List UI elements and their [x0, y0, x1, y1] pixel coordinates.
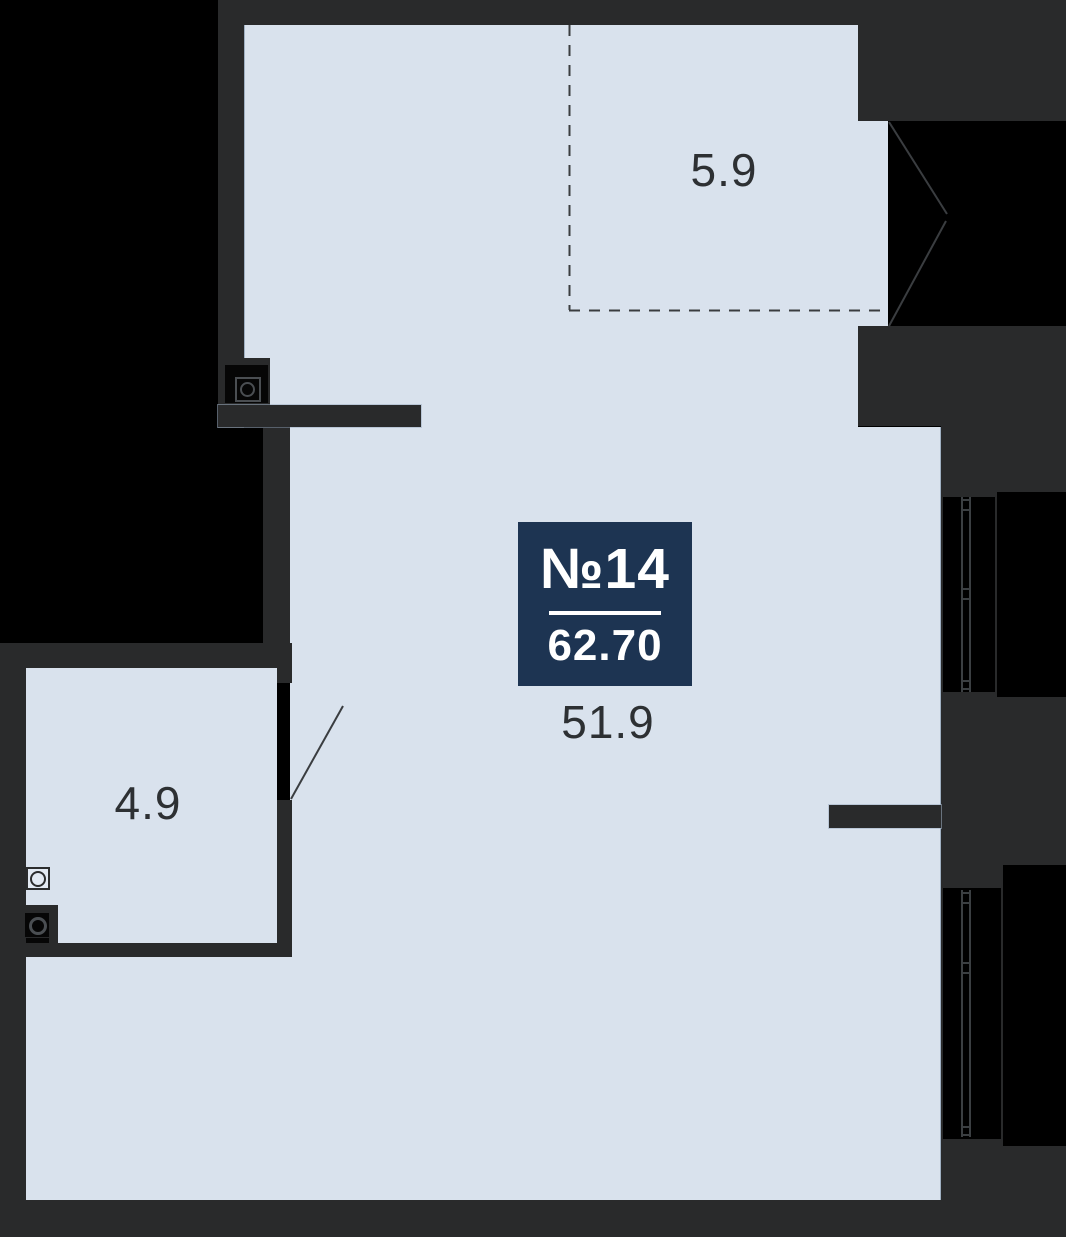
entry-door-swing: [889, 122, 947, 326]
window-1-glazing: [961, 497, 971, 692]
bathroom-door-swing: [291, 706, 343, 799]
unit-number: №14: [540, 541, 670, 598]
badge-divider: [549, 611, 661, 615]
floor-plan: №14 62.70 5.9 51.9 4.9: [0, 0, 1066, 1237]
washer-icon-dark: [25, 913, 49, 937]
unit-total-area: 62.70: [547, 624, 662, 668]
living-area-label: 51.9: [561, 695, 655, 749]
window-2-glazing: [961, 890, 971, 1137]
washer-icon-base-bar: [26, 938, 49, 943]
unit-badge: №14 62.70: [518, 522, 692, 686]
fixture-icon-light: [26, 867, 50, 890]
bathroom-area-label: 4.9: [115, 776, 182, 830]
balcony-area-label: 5.9: [691, 143, 758, 197]
washer-icon-top: [225, 365, 268, 403]
